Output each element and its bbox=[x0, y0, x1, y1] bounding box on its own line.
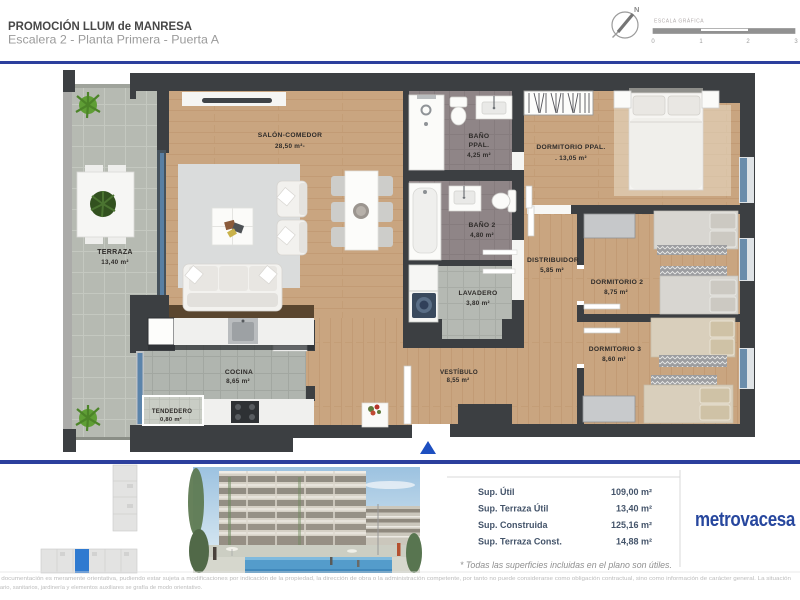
svg-text:28,50 m²-: 28,50 m²- bbox=[275, 143, 305, 150]
svg-text:5,85 m²: 5,85 m² bbox=[540, 267, 564, 274]
svg-text:DISTRIBUIDOR: DISTRIBUIDOR bbox=[527, 257, 579, 264]
svg-text:8,55 m²: 8,55 m² bbox=[447, 377, 470, 384]
svg-text:Escalera 2 - Planta Primera -: Escalera 2 - Planta Primera - Puerta A bbox=[8, 33, 219, 47]
svg-text:8,75 m²: 8,75 m² bbox=[604, 289, 628, 296]
svg-text:13,40 m²: 13,40 m² bbox=[616, 504, 652, 514]
svg-text:PROMOCIÓN LLUM de MANRESA: PROMOCIÓN LLUM de MANRESA bbox=[8, 18, 192, 33]
svg-text:ESCALA GRÁFICA: ESCALA GRÁFICA bbox=[654, 18, 704, 25]
svg-text:iliario, sanitarios, jardinerí: iliario, sanitarios, jardinería y elemen… bbox=[0, 585, 203, 591]
svg-text:TERRAZA: TERRAZA bbox=[97, 249, 133, 256]
svg-text:DORMITORIO 3: DORMITORIO 3 bbox=[589, 346, 642, 353]
svg-text:a documentación es meramente o: a documentación es meramente orientativa… bbox=[0, 576, 791, 582]
svg-text:109,00 m²: 109,00 m² bbox=[611, 487, 652, 497]
svg-text:Sup. Terraza Útil: Sup. Terraza Útil bbox=[478, 503, 548, 514]
svg-text:DORMITORIO PPAL.: DORMITORIO PPAL. bbox=[536, 144, 605, 151]
svg-text:TENDEDERO: TENDEDERO bbox=[152, 409, 192, 415]
svg-text:BAÑO 2: BAÑO 2 bbox=[468, 220, 495, 229]
svg-text:13,40 m²: 13,40 m² bbox=[101, 259, 129, 266]
svg-text:DORMITORIO 2: DORMITORIO 2 bbox=[591, 279, 644, 286]
svg-text:SALÓN-COMEDOR: SALÓN-COMEDOR bbox=[258, 130, 322, 139]
svg-text:3,80 m²: 3,80 m² bbox=[466, 300, 490, 307]
svg-text:0,80 m²: 0,80 m² bbox=[160, 416, 182, 423]
svg-text:8,65 m²: 8,65 m² bbox=[226, 378, 250, 385]
svg-text:BAÑO: BAÑO bbox=[469, 131, 490, 140]
svg-text:metrovacesa: metrovacesa bbox=[695, 509, 796, 531]
svg-text:Sup. Construida: Sup. Construida bbox=[478, 520, 548, 530]
svg-text:4,80 m²: 4,80 m² bbox=[470, 232, 494, 239]
svg-text:Sup. Terraza Const.: Sup. Terraza Const. bbox=[478, 537, 562, 547]
svg-text:VESTÍBULO: VESTÍBULO bbox=[440, 368, 478, 376]
svg-text:125,16 m²: 125,16 m² bbox=[611, 520, 652, 530]
svg-text:N: N bbox=[634, 5, 639, 14]
svg-text:LAVADERO: LAVADERO bbox=[459, 290, 498, 297]
svg-text:PPAL.: PPAL. bbox=[469, 142, 490, 149]
svg-text:. 13,05 m²: . 13,05 m² bbox=[555, 155, 587, 162]
svg-text:COCINA: COCINA bbox=[225, 369, 253, 376]
svg-text:14,88 m²: 14,88 m² bbox=[616, 537, 652, 547]
svg-text:8,60 m²: 8,60 m² bbox=[602, 356, 626, 363]
svg-text:4,25 m²: 4,25 m² bbox=[467, 152, 491, 159]
svg-text:Sup. Útil: Sup. Útil bbox=[478, 486, 515, 497]
svg-text:* Todas las superficies inclui: * Todas las superficies incluidas en el … bbox=[460, 560, 672, 570]
